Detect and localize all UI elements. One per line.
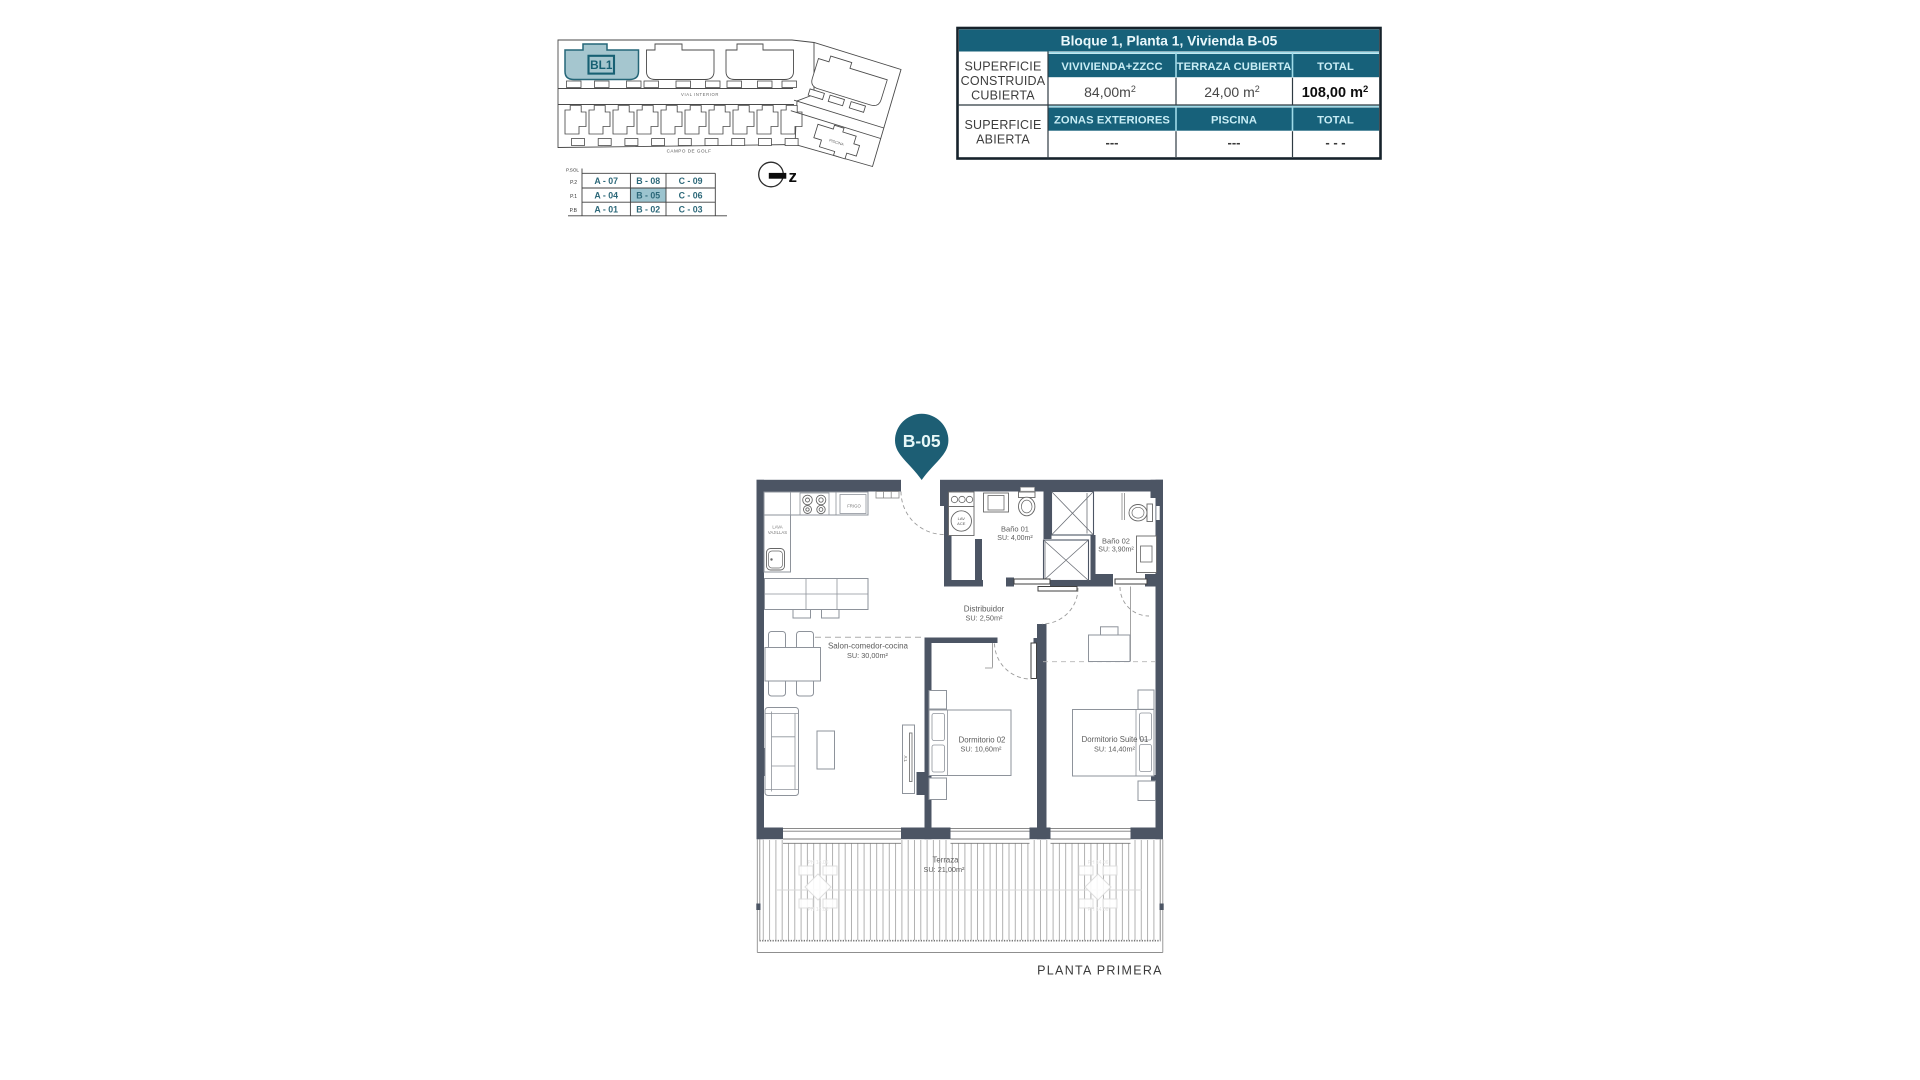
svg-text:CAMPO DE GOLF: CAMPO DE GOLF <box>667 149 712 154</box>
svg-text:TOTAL: TOTAL <box>1317 115 1354 127</box>
svg-text:Distribuidor: Distribuidor <box>964 605 1005 614</box>
svg-text:SU: 10,60m²: SU: 10,60m² <box>961 745 1003 754</box>
svg-text:ZONAS EXTERIORES: ZONAS EXTERIORES <box>1054 115 1170 127</box>
svg-text:P.1: P.1 <box>570 194 577 200</box>
svg-text:SU: 14,40m²: SU: 14,40m² <box>1094 745 1136 754</box>
svg-text:CONSTRUIDA: CONSTRUIDA <box>961 74 1046 88</box>
svg-text:B - 02: B - 02 <box>636 204 660 214</box>
svg-text:TERRAZA CUBIERTA: TERRAZA CUBIERTA <box>1177 61 1292 73</box>
svg-text:A - 04: A - 04 <box>594 190 618 200</box>
svg-text:SU: 3,90m²: SU: 3,90m² <box>1098 547 1134 554</box>
svg-text:P.B: P.B <box>570 208 578 214</box>
svg-text:FRIGO: FRIGO <box>847 504 861 509</box>
svg-text:Terraza: Terraza <box>933 856 960 865</box>
svg-text:PLANTA PRIMERA: PLANTA PRIMERA <box>1037 964 1163 978</box>
svg-text:PISCINA: PISCINA <box>1211 115 1257 127</box>
svg-text:C - 09: C - 09 <box>679 176 703 186</box>
svg-text:Bloque 1, Planta 1, Vivienda B: Bloque 1, Planta 1, Vivienda B-05 <box>1061 33 1278 48</box>
svg-text:SU: 30,00m²: SU: 30,00m² <box>847 651 889 660</box>
svg-text:VAJILLAS: VAJILLAS <box>768 530 787 535</box>
svg-text:Dormitorio Suite 01: Dormitorio Suite 01 <box>1082 735 1149 744</box>
svg-text:A - 01: A - 01 <box>594 204 618 214</box>
svg-text:VIAL INTERIOR: VIAL INTERIOR <box>681 92 719 97</box>
svg-text:C - 06: C - 06 <box>679 190 703 200</box>
svg-text:108,00 m2: 108,00 m2 <box>1302 84 1369 101</box>
svg-text:Salon-comedor-cocina: Salon-comedor-cocina <box>828 642 909 651</box>
svg-text:T.V: T.V <box>903 755 908 762</box>
svg-text:A - 07: A - 07 <box>594 176 618 186</box>
svg-text:B - 05: B - 05 <box>636 190 660 200</box>
svg-text:SU: 2,50m²: SU: 2,50m² <box>966 614 1003 623</box>
svg-text:SUPERFICIE: SUPERFICIE <box>964 60 1041 74</box>
svg-text:PH 14.06: PH 14.06 <box>1088 860 1109 866</box>
svg-text:SU: 21,00m²: SU: 21,00m² <box>924 865 966 874</box>
svg-text:PH 14.06: PH 14.06 <box>1088 907 1109 913</box>
svg-text:- - -: - - - <box>1325 135 1345 150</box>
svg-text:CUBIERTA: CUBIERTA <box>971 89 1035 103</box>
svg-text:P.2: P.2 <box>570 180 577 186</box>
svg-text:TOTAL: TOTAL <box>1317 61 1354 73</box>
svg-text:---: --- <box>1228 135 1241 150</box>
svg-text:PH 14.06: PH 14.06 <box>808 860 829 866</box>
svg-text:SU: 4,00m²: SU: 4,00m² <box>997 535 1033 542</box>
svg-text:ACE: ACE <box>957 521 966 526</box>
svg-text:C - 03: C - 03 <box>679 204 703 214</box>
svg-text:24,00 m2: 24,00 m2 <box>1204 84 1260 100</box>
svg-text:SUPERFICIE: SUPERFICIE <box>964 118 1041 132</box>
svg-text:VIVIVIENDA+ZZCC: VIVIVIENDA+ZZCC <box>1061 61 1162 73</box>
svg-text:84,00m2: 84,00m2 <box>1084 84 1136 100</box>
svg-text:LAVA: LAVA <box>772 525 782 530</box>
svg-text:B - 08: B - 08 <box>636 176 660 186</box>
svg-text:P.SOL: P.SOL <box>566 168 579 173</box>
svg-text:PH 14.06: PH 14.06 <box>808 907 829 913</box>
svg-text:z: z <box>789 167 798 186</box>
svg-text:Dormitorio 02: Dormitorio 02 <box>959 736 1006 745</box>
svg-text:---: --- <box>1106 135 1119 150</box>
svg-text:BL1: BL1 <box>590 58 613 72</box>
svg-text:ABIERTA: ABIERTA <box>976 133 1030 147</box>
svg-text:Baño 02: Baño 02 <box>1102 537 1130 546</box>
svg-text:Baño 01: Baño 01 <box>1001 525 1029 534</box>
svg-text:B-05: B-05 <box>903 431 941 451</box>
